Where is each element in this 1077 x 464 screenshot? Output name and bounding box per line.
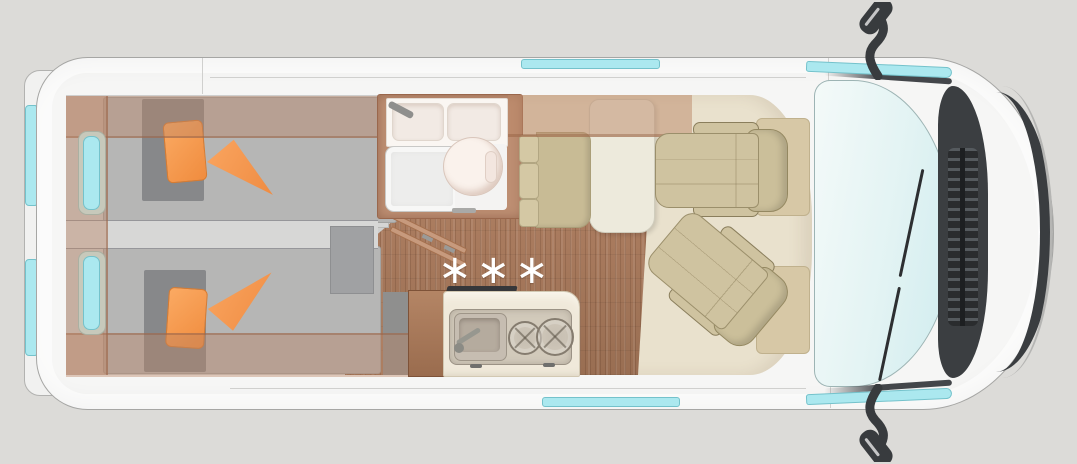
bathroom-door-handle — [452, 208, 476, 213]
rear-door-window-lower — [83, 256, 100, 330]
kitchen-faucet-base — [454, 343, 464, 353]
dinette-bench-seat — [536, 132, 591, 228]
side-mirror-bottom-icon — [842, 384, 912, 462]
coach-window-top — [521, 59, 660, 69]
roof-seam-bottom — [230, 388, 806, 389]
overhead-cabinet-top — [66, 96, 412, 138]
burner-right — [536, 318, 574, 356]
coach-window-bottom — [542, 397, 680, 407]
mirror-head — [856, 2, 896, 38]
van-floorplan-canvas: ∗∗∗ — [0, 0, 1077, 464]
toilet — [443, 137, 503, 196]
grille-vents — [948, 148, 978, 326]
counter-foot — [543, 363, 555, 367]
panel-seam-rear-top — [202, 58, 203, 94]
front-bumper-seam — [1002, 86, 1053, 378]
roof-seam-top — [210, 77, 806, 78]
counter-foot — [470, 364, 482, 368]
mirror-head — [856, 426, 896, 462]
cabinet-tall-gray — [330, 226, 374, 294]
side-mirror-top-icon — [842, 2, 912, 80]
swivel-seat-top — [653, 122, 788, 217]
washbasin-right — [447, 103, 501, 141]
bench-backrest-cushion — [519, 135, 539, 163]
kitchen-asterisk-marks: ∗∗∗ — [438, 250, 554, 290]
side-mirror-top — [842, 2, 912, 80]
side-mirror-bottom — [842, 384, 912, 462]
seat-cushion — [655, 133, 759, 208]
rear-door-window-upper — [83, 136, 100, 210]
bench-backrest-cushion — [519, 163, 539, 199]
bench-backrest-cushion — [519, 199, 539, 227]
kitchen-wardrobe — [408, 290, 448, 377]
overhead-cabinet-bottom — [66, 333, 412, 377]
